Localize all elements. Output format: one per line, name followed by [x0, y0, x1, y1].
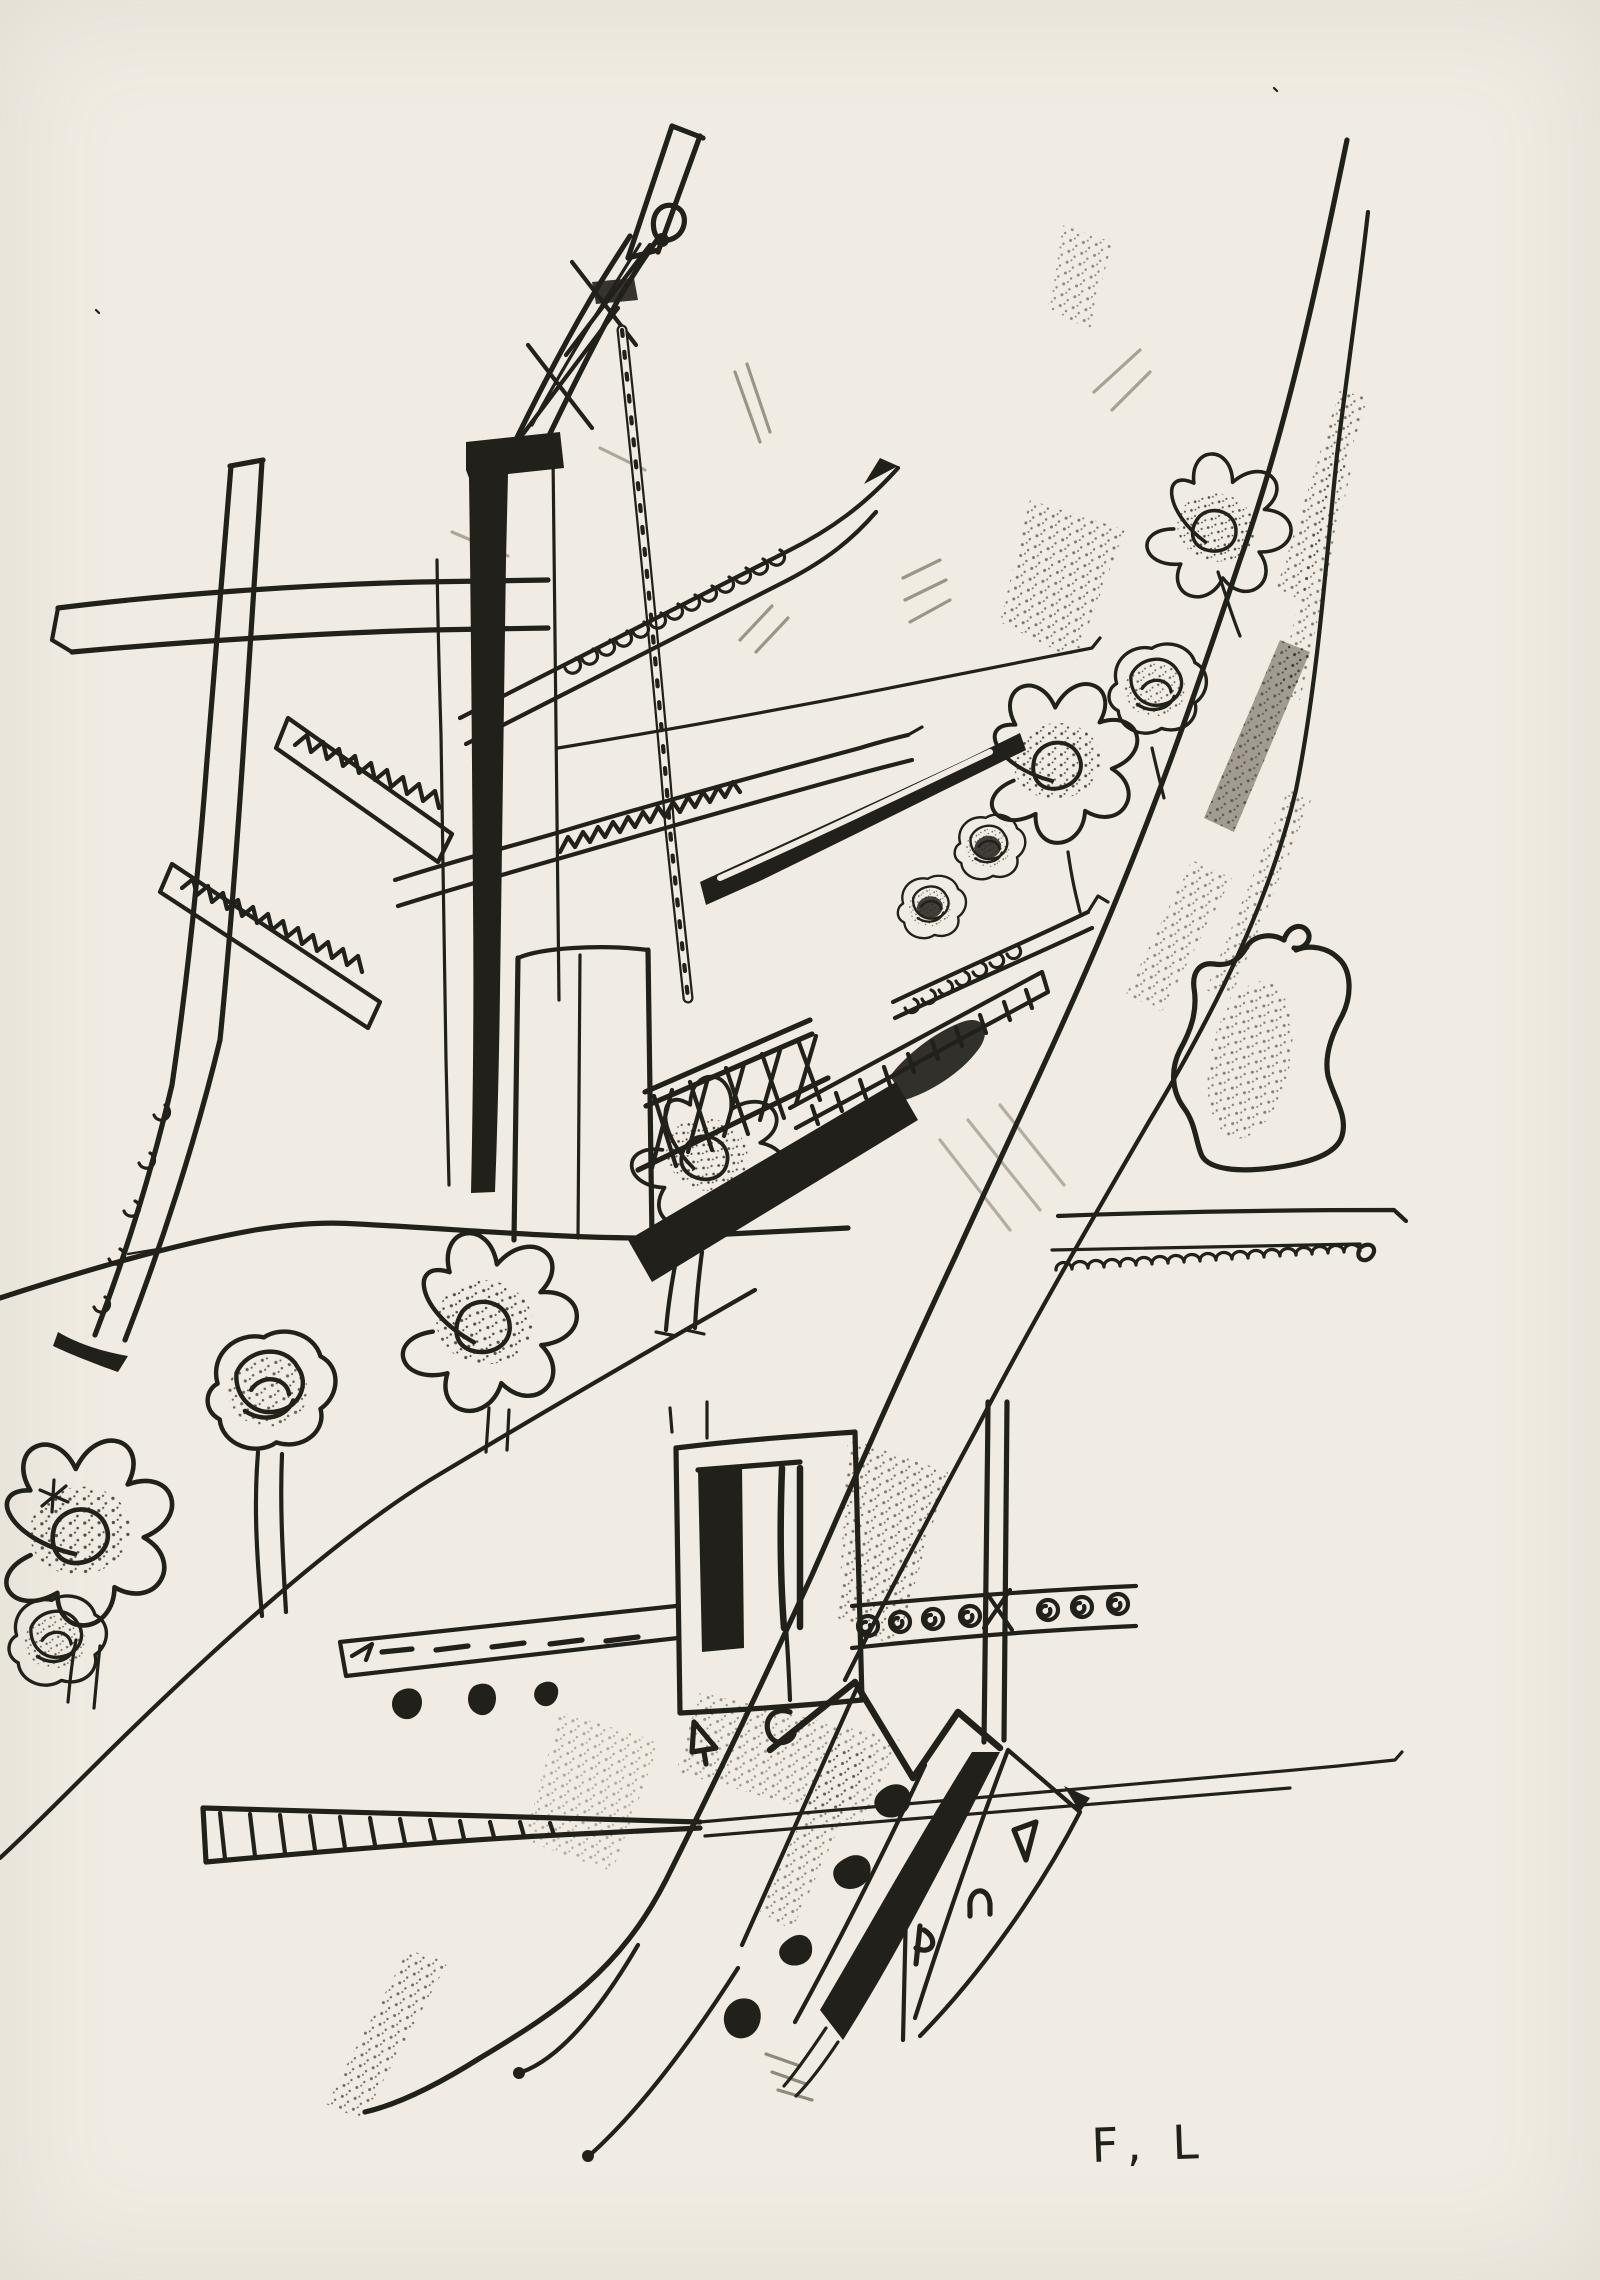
n-glyph: [970, 1891, 990, 1916]
central-mast: [466, 126, 703, 1193]
bird-marks: [392, 1674, 568, 1719]
artist-signature: F, L: [1090, 2115, 1207, 2174]
d-glyph: [1014, 1822, 1036, 1860]
hatched-beam-upper: [276, 718, 452, 862]
hatched-beam-lower: [160, 864, 380, 1028]
hill-tree-large: [398, 1227, 585, 1421]
tall-post: [984, 1402, 1007, 1742]
spotted-strut: [622, 330, 688, 998]
arrow-beam: [460, 458, 898, 744]
doorway-structure: [670, 1402, 862, 1764]
scallop-bar: [1052, 1244, 1374, 1270]
hill-tree-small: [208, 1332, 336, 1449]
dashed-plank: [340, 1606, 678, 1676]
road-inner-line: [522, 1945, 638, 2072]
left-bush: [0, 1424, 191, 1708]
white-pillar: [514, 947, 652, 1240]
dark-shrub-2: [898, 876, 966, 938]
boot-shape: [1174, 926, 1349, 1169]
drawing-canvas: F, L: [0, 0, 1600, 2280]
p-glyph: [916, 1926, 933, 1964]
dark-shrub-1: [955, 815, 1026, 880]
house-band-glyphs: [903, 1750, 1090, 2040]
lithograph-artwork: F, L: [0, 0, 1600, 2280]
